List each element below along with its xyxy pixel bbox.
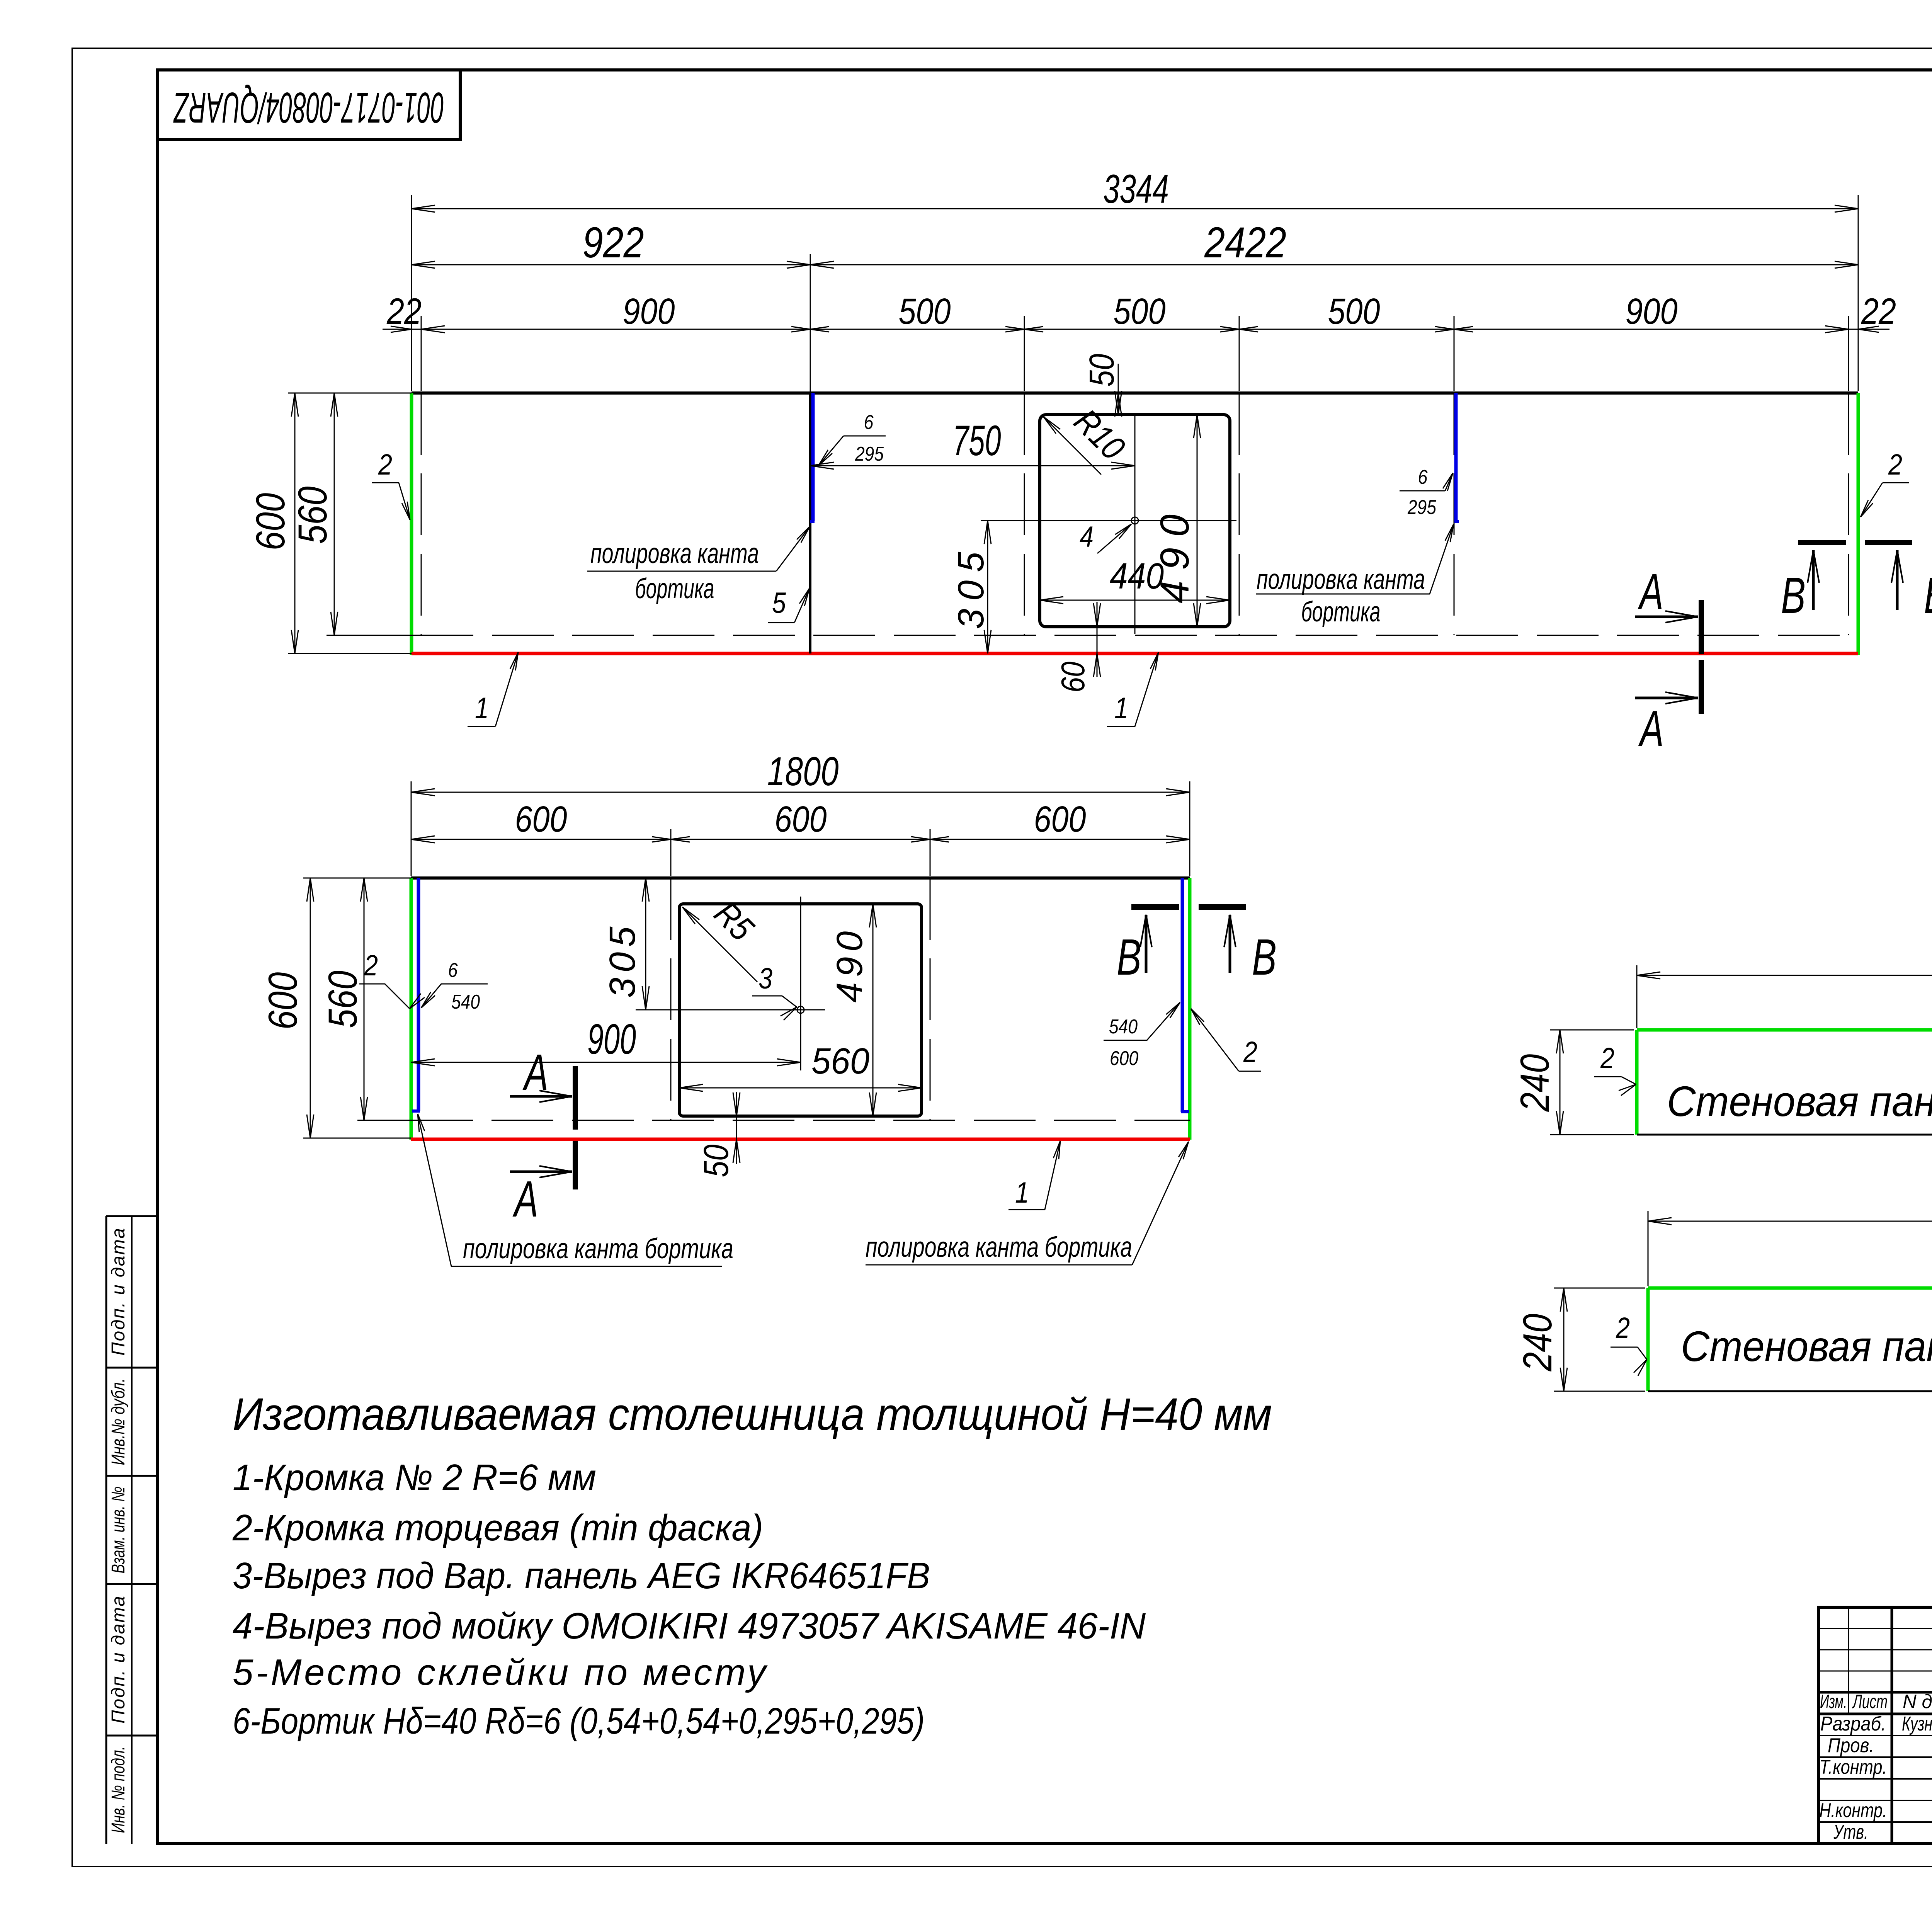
- svg-text:490: 490: [829, 931, 870, 1002]
- svg-text:600: 600: [1034, 799, 1086, 840]
- svg-text:2422: 2422: [1204, 218, 1286, 267]
- svg-text:6-Бортик Нδ=40 Rδ=6 (0,54+0: 6-Бортик Нδ=40 Rδ=6 (0,54+0,54+0,295+0,2…: [233, 1700, 925, 1742]
- svg-text:3344: 3344: [1103, 167, 1169, 212]
- svg-text:900: 900: [623, 291, 675, 332]
- svg-text:Инв. № подл.: Инв. № подл.: [108, 1746, 129, 1833]
- svg-text:560: 560: [290, 487, 335, 544]
- svg-text:2: 2: [1243, 1036, 1257, 1069]
- svg-text:А: А: [1638, 563, 1663, 620]
- svg-text:2: 2: [364, 949, 378, 982]
- svg-text:Изм.: Изм.: [1820, 1691, 1847, 1712]
- svg-text:Взам. инв. №: Взам. инв. №: [108, 1487, 129, 1574]
- svg-text:Инв.№ дубл.: Инв.№ дубл.: [108, 1378, 129, 1465]
- svg-text:305: 305: [602, 926, 643, 998]
- svg-text:540: 540: [451, 991, 480, 1013]
- svg-text:6: 6: [1418, 466, 1428, 488]
- svg-text:295: 295: [855, 443, 884, 465]
- svg-text:6: 6: [448, 959, 458, 982]
- svg-text:900: 900: [1626, 291, 1678, 332]
- svg-text:А: А: [512, 1171, 538, 1227]
- svg-text:бортика: бортика: [1301, 596, 1381, 628]
- svg-text:Стеновая панель Н=20: Стеновая панель Н=20: [1681, 1323, 1932, 1370]
- svg-text:Кузнецов Д: Кузнецов Д: [1902, 1713, 1932, 1735]
- svg-text:полировка канта бортика: полировка канта бортика: [866, 1232, 1132, 1263]
- svg-text:60: 60: [1055, 662, 1092, 693]
- svg-text:В: В: [1781, 567, 1806, 624]
- svg-text:2: 2: [1616, 1312, 1630, 1344]
- svg-text:Стеновая панель Н=20: Стеновая панель Н=20: [1667, 1078, 1932, 1125]
- svg-text:1800: 1800: [767, 749, 839, 794]
- svg-text:1: 1: [475, 692, 489, 725]
- svg-text:600: 600: [775, 799, 827, 840]
- svg-text:3: 3: [759, 962, 772, 995]
- svg-text:50: 50: [697, 1145, 736, 1178]
- svg-text:3-Вырез под Вар. панель AE: 3-Вырез под Вар. панель AEG IKR64651FB: [233, 1555, 930, 1596]
- svg-text:22: 22: [386, 291, 422, 332]
- svg-text:600: 600: [1110, 1047, 1138, 1070]
- svg-text:полировка канта: полировка канта: [590, 538, 759, 569]
- svg-text:Подп. и дата: Подп. и дата: [108, 1596, 129, 1724]
- svg-text:5-Место склейки по месту: 5-Место склейки по месту: [233, 1652, 768, 1693]
- svg-text:В: В: [1924, 567, 1932, 624]
- svg-text:50: 50: [1083, 354, 1121, 387]
- svg-text:600: 600: [248, 493, 293, 551]
- svg-text:305: 305: [951, 551, 992, 629]
- svg-text:Н.контр.: Н.контр.: [1820, 1799, 1887, 1822]
- svg-text:440: 440: [1110, 556, 1164, 597]
- svg-text:1-Кромка № 2 R=6 мм: 1-Кромка № 2 R=6 мм: [233, 1457, 596, 1498]
- svg-text:2: 2: [1888, 448, 1902, 481]
- svg-text:Лист: Лист: [1852, 1691, 1888, 1712]
- svg-text:В: В: [1117, 929, 1141, 985]
- svg-text:6: 6: [864, 411, 874, 434]
- svg-text:Изготавливаемая столешница т: Изготавливаемая столешница толщиной Н=40…: [233, 1389, 1272, 1440]
- svg-text:2: 2: [378, 448, 392, 481]
- svg-text:А: А: [522, 1044, 548, 1101]
- svg-text:540: 540: [1109, 1016, 1138, 1038]
- svg-text:Подп. и дата: Подп. и дата: [108, 1228, 129, 1356]
- svg-text:600: 600: [515, 799, 567, 840]
- svg-text:5: 5: [772, 587, 786, 619]
- svg-text:полировка канта бортика: полировка канта бортика: [463, 1233, 733, 1264]
- svg-text:22: 22: [1861, 291, 1896, 332]
- svg-text:полировка канта: полировка канта: [1257, 564, 1425, 595]
- svg-text:1: 1: [1015, 1176, 1029, 1209]
- svg-text:500: 500: [1114, 291, 1166, 332]
- svg-text:А: А: [1638, 700, 1664, 757]
- svg-text:295: 295: [1407, 496, 1437, 519]
- svg-text:001-0717-00804/QUARZ: 001-0717-00804/QUARZ: [173, 83, 444, 132]
- svg-text:Пров.: Пров.: [1828, 1734, 1874, 1757]
- svg-text:2: 2: [1600, 1042, 1614, 1075]
- svg-text:Утв.: Утв.: [1833, 1821, 1868, 1843]
- svg-text:500: 500: [1328, 291, 1380, 332]
- svg-text:Т.контр.: Т.контр.: [1820, 1756, 1887, 1778]
- svg-text:N докум.: N докум.: [1903, 1691, 1932, 1712]
- svg-text:240: 240: [1512, 1054, 1558, 1112]
- svg-text:2-Кромка торцевая (min фаск: 2-Кромка торцевая (min фаска): [232, 1507, 763, 1548]
- svg-text:В: В: [1252, 929, 1277, 985]
- svg-text:750: 750: [953, 417, 1001, 465]
- svg-text:922: 922: [583, 218, 644, 267]
- svg-text:560: 560: [811, 1041, 869, 1082]
- svg-text:900: 900: [587, 1016, 636, 1063]
- svg-text:4-Вырез под мойку OMOIKIRI: 4-Вырез под мойку OMOIKIRI 4973057 AKISA…: [233, 1605, 1146, 1647]
- svg-text:бортика: бортика: [635, 573, 714, 604]
- svg-text:560: 560: [320, 971, 366, 1028]
- svg-text:Разраб.: Разраб.: [1820, 1713, 1886, 1735]
- svg-text:600: 600: [260, 972, 306, 1030]
- svg-text:240: 240: [1515, 1314, 1560, 1372]
- svg-text:1: 1: [1114, 692, 1128, 725]
- svg-text:4: 4: [1080, 521, 1094, 553]
- svg-text:500: 500: [899, 291, 951, 332]
